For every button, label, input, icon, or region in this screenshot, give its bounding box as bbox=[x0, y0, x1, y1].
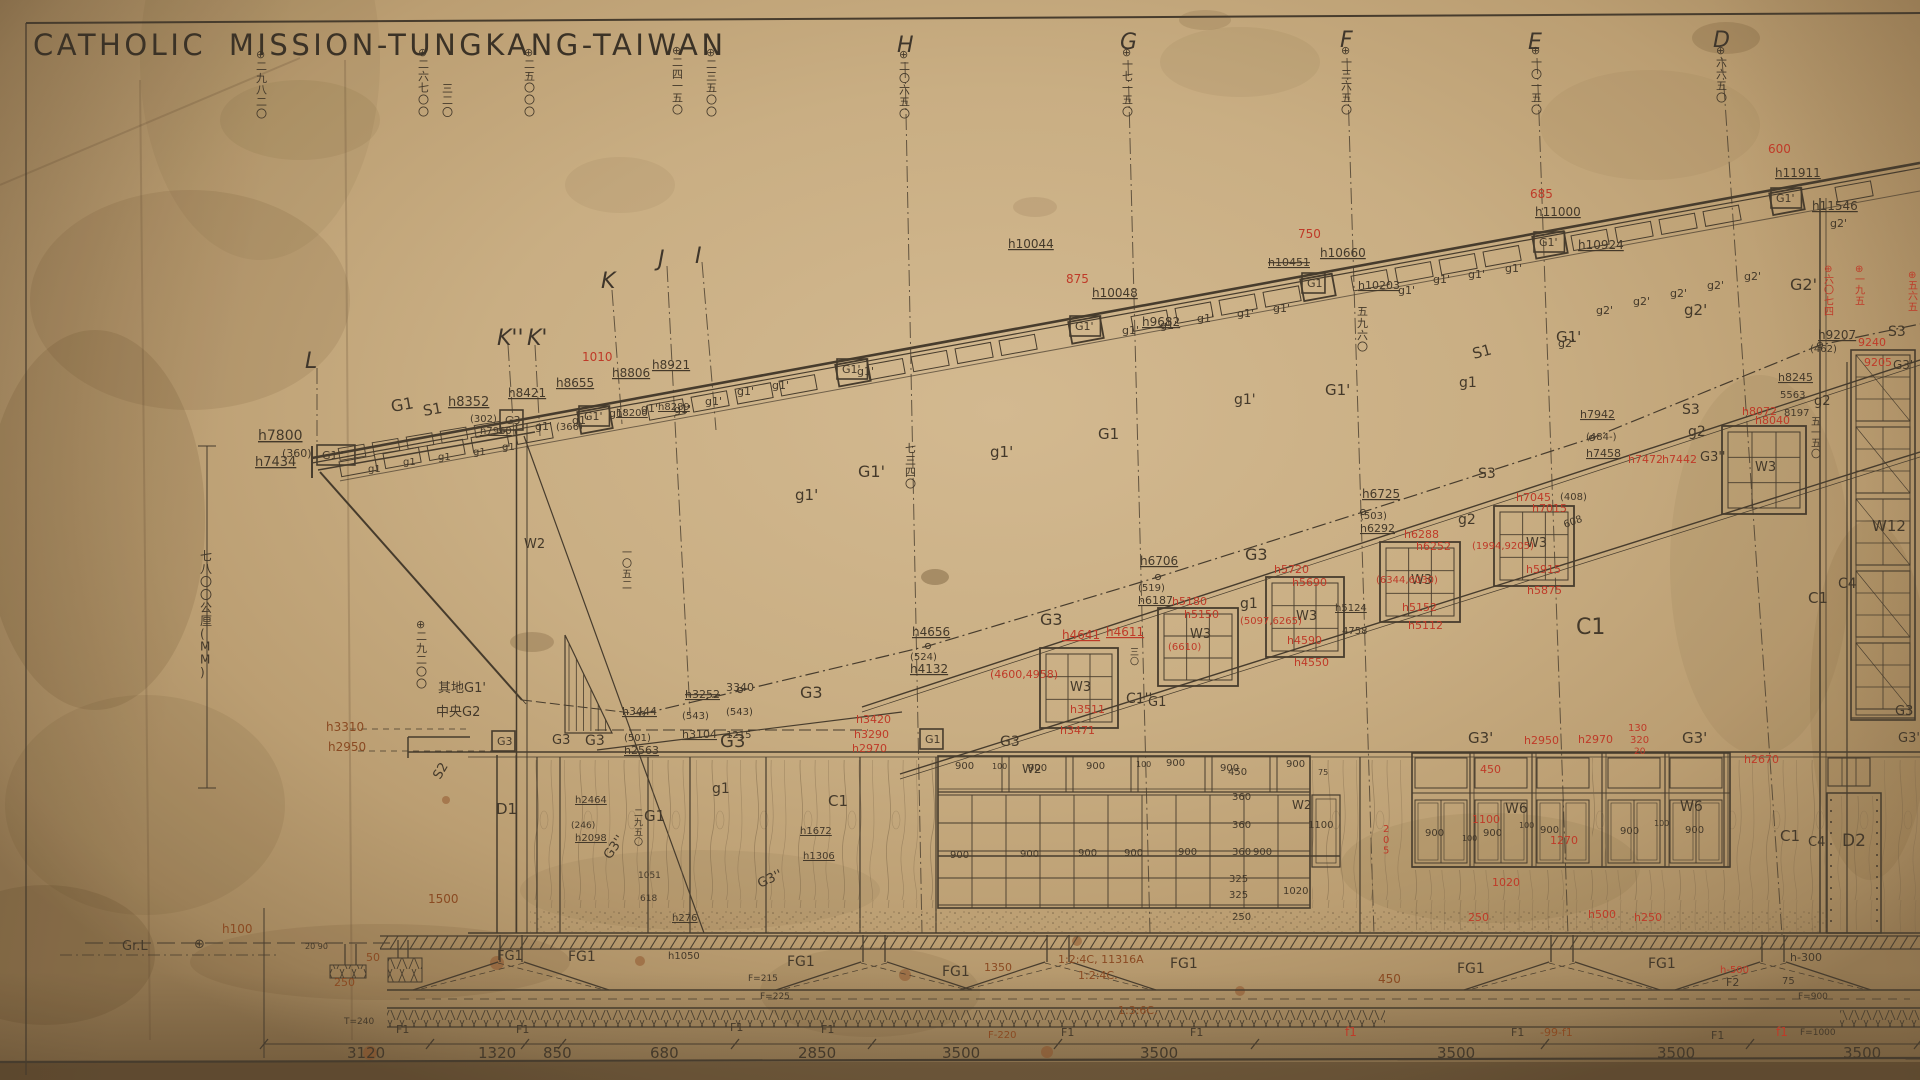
annotation-label: W6 bbox=[1680, 799, 1703, 815]
annotation-label: h8806 bbox=[612, 366, 650, 380]
annotation-label: FG1 bbox=[568, 949, 596, 965]
annotation-label: g1' bbox=[609, 407, 626, 420]
annotation-label: h4590 bbox=[1287, 634, 1322, 647]
annotation-label: g1 bbox=[712, 781, 730, 797]
annotation-label: 1:2:4C. bbox=[1078, 969, 1118, 982]
casement-inner bbox=[1637, 803, 1657, 860]
annotation-label: G1 bbox=[1098, 425, 1119, 443]
annotation-label: h5152 bbox=[1402, 601, 1437, 614]
annotation-label: 3500 bbox=[942, 1044, 980, 1062]
annotation-label: 900 bbox=[1253, 847, 1272, 858]
screenshot-root: ⊕二九八二〇⊕二六七〇〇三二〇⊕二五〇〇〇⊕二四一五〇⊕二三五〇〇⊕二〇六五〇⊕… bbox=[0, 0, 1920, 1080]
rivet bbox=[1830, 810, 1832, 812]
annotation-label: F1 bbox=[1061, 1026, 1074, 1039]
purlin bbox=[955, 342, 993, 363]
annotation-label: C1'' bbox=[1126, 691, 1152, 707]
rivet bbox=[1830, 799, 1832, 801]
annotation-label: FG1 bbox=[1648, 956, 1676, 972]
annotation-label: 100 bbox=[1136, 760, 1151, 769]
annotation-label: g1' bbox=[1273, 302, 1290, 315]
annotation-label: g2 bbox=[1688, 424, 1706, 440]
annotation-label: h5112 bbox=[1408, 619, 1443, 632]
annotation-label: W12 bbox=[1872, 517, 1906, 535]
ground-hatch bbox=[380, 936, 1920, 949]
annotation-label: W3 bbox=[1190, 627, 1211, 642]
annotation-label: 1100 bbox=[1308, 820, 1333, 831]
annotation-label: 100 bbox=[1654, 819, 1669, 828]
annotation-label: 75 bbox=[1782, 976, 1795, 987]
rivet bbox=[1830, 843, 1832, 845]
annotation-label: h10451 bbox=[1268, 256, 1310, 269]
annotation-label: W6 bbox=[1505, 801, 1528, 817]
annotation-label: 900 bbox=[1483, 828, 1502, 839]
annotation-label: 75 bbox=[1318, 768, 1328, 777]
annotation-label: FG1 bbox=[1457, 961, 1485, 977]
annotation-label: g1' bbox=[1234, 392, 1256, 408]
annotation-label: h4550 bbox=[1294, 656, 1329, 669]
annotation-label: h7442 bbox=[1662, 453, 1697, 466]
annotation-label: h3310 bbox=[326, 720, 364, 734]
annotation-label: f1 bbox=[1345, 1025, 1357, 1039]
annotation-label: h2950 bbox=[328, 740, 366, 754]
purlin-rect bbox=[1703, 205, 1741, 226]
annotation-label: h-300 bbox=[1790, 951, 1822, 964]
annotation-label: 20 90 bbox=[305, 942, 328, 951]
paper-crease bbox=[345, 60, 352, 1040]
rust-blot bbox=[1041, 1046, 1053, 1058]
annotation-label: L bbox=[305, 349, 317, 374]
annotation-label: h1050 bbox=[668, 951, 700, 962]
annotation-label: K'' bbox=[497, 326, 524, 351]
annotation-label: E bbox=[1528, 30, 1542, 55]
annotation-label: h5720 bbox=[1274, 563, 1309, 576]
annotation-label: 250 bbox=[334, 976, 355, 989]
annotation-label: 875 bbox=[1066, 272, 1089, 286]
rivet bbox=[1876, 810, 1878, 812]
annotation-label: 七三四〇 bbox=[905, 442, 916, 491]
annotation-label: h7015 bbox=[1532, 502, 1567, 515]
annotation-label: h11546 bbox=[1812, 199, 1858, 213]
annotation-label: 600 bbox=[1768, 142, 1791, 156]
annotation-label: ⊕一九五 bbox=[1855, 264, 1865, 307]
purlin-rect bbox=[955, 342, 993, 363]
annotation-label: h3511 bbox=[1070, 703, 1105, 716]
annotation-label: h5875 bbox=[1527, 584, 1562, 597]
stain bbox=[5, 695, 285, 915]
rivet bbox=[1876, 909, 1878, 911]
annotation-label: 360 bbox=[1232, 792, 1251, 803]
roof-top-chord-inner bbox=[312, 168, 1920, 463]
stain bbox=[1179, 10, 1231, 30]
annotation-label: C4 bbox=[1808, 835, 1825, 850]
transom-pane bbox=[1608, 758, 1660, 788]
annotation-label: K bbox=[601, 269, 617, 294]
rivet bbox=[1830, 887, 1832, 889]
annotation-label: (543) bbox=[682, 711, 709, 722]
annotation-label: C1 bbox=[828, 792, 848, 810]
annotation-label: F1 bbox=[396, 1023, 409, 1036]
annotation-label: 360 bbox=[1232, 820, 1251, 831]
annotation-label: G3 bbox=[1245, 545, 1268, 564]
annotation-label: 900 bbox=[1028, 763, 1047, 774]
annotation-label: G3 bbox=[1895, 704, 1913, 719]
annotation-label: g1' bbox=[1398, 284, 1415, 297]
annotation-label: G1 bbox=[644, 807, 665, 825]
annotation-label: h500 bbox=[1588, 908, 1616, 921]
annotation-label: 二九五〇 bbox=[634, 809, 643, 848]
annotation-label: 900 bbox=[1086, 761, 1105, 772]
annotation-label: F=1000 bbox=[1800, 1028, 1836, 1038]
annotation-label: g1' bbox=[641, 402, 658, 415]
rivet bbox=[1876, 865, 1878, 867]
annotation-label: g1' bbox=[674, 403, 691, 416]
door-wood bbox=[1830, 796, 1878, 930]
annotation-label: h7472 bbox=[1628, 453, 1663, 466]
annotation-label: h-500 bbox=[1720, 965, 1749, 976]
annotation-label: F1 bbox=[1711, 1029, 1724, 1042]
footing-hatch bbox=[387, 1010, 1385, 1027]
purlin bbox=[1395, 262, 1433, 283]
annotation-label: 3500 bbox=[1657, 1044, 1695, 1062]
annotation-label: 1010 bbox=[582, 350, 613, 364]
annotation-label: 900 bbox=[1124, 848, 1143, 859]
purlin-rect bbox=[1395, 262, 1433, 283]
annotation-label: F1 bbox=[1190, 1026, 1203, 1039]
annotation-label: 130 bbox=[1628, 723, 1647, 734]
annotation-label: W2 bbox=[524, 537, 545, 552]
annotation-label: g1 bbox=[403, 457, 416, 468]
annotation-label: h10048 bbox=[1092, 286, 1138, 300]
annotation-label: h4132 bbox=[910, 662, 948, 676]
annotation-label: D1 bbox=[496, 800, 517, 818]
annotation-label: g1' bbox=[990, 443, 1013, 461]
annotation-label: h5915 bbox=[1526, 563, 1561, 576]
annotation-label: h3420 bbox=[856, 713, 891, 726]
annotation-label: f1 bbox=[1776, 1025, 1788, 1039]
purlin-rect bbox=[911, 350, 949, 371]
annotation-label: 1051 bbox=[638, 871, 661, 881]
annotation-label: 900 bbox=[1178, 847, 1197, 858]
annotation-label: g2' bbox=[1830, 217, 1847, 230]
annotation-label: G1' bbox=[1556, 328, 1581, 346]
annotation-label: (4600,4958) bbox=[990, 668, 1058, 681]
annotation-label: 100 bbox=[992, 762, 1007, 771]
annotation-label: F1 bbox=[516, 1023, 529, 1036]
annotation-label: g1 bbox=[1459, 375, 1477, 391]
annotation-label: h8352 bbox=[448, 395, 489, 410]
annotation-label: h4611 bbox=[1106, 625, 1144, 639]
annotation-label: (5097,6265) bbox=[1240, 616, 1302, 627]
annotation-label: 50 bbox=[366, 951, 380, 964]
rivet bbox=[1876, 832, 1878, 834]
annotation-label: W3 bbox=[1070, 680, 1091, 695]
annotation-label: h276 bbox=[672, 913, 697, 924]
rivet bbox=[1876, 898, 1878, 900]
annotation-label: ⊕六〇七四 bbox=[1824, 264, 1834, 318]
annotation-label: 320 bbox=[1630, 735, 1649, 746]
annotation-label: 3120 bbox=[347, 1044, 385, 1062]
annotation-label: g2 bbox=[1814, 394, 1831, 409]
annotation-label: g2 bbox=[1458, 512, 1476, 528]
annotation-label: g1' bbox=[795, 486, 818, 504]
annotation-label: G1 bbox=[389, 393, 415, 416]
annotation-label: 2850 bbox=[798, 1044, 836, 1062]
annotation-label: S1 bbox=[422, 399, 444, 420]
annotation-label: G2' bbox=[1790, 275, 1817, 294]
rivet bbox=[1876, 843, 1878, 845]
rivet bbox=[1876, 887, 1878, 889]
annotation-label: 680 bbox=[650, 1044, 679, 1062]
annotation-label: h100 bbox=[222, 922, 253, 936]
annotation-label: G3 bbox=[497, 735, 513, 748]
rivet bbox=[1876, 920, 1878, 922]
annotation-label: (501) bbox=[624, 733, 651, 744]
rivet bbox=[1830, 920, 1832, 922]
rivet bbox=[1876, 854, 1878, 856]
annotation-label: g1' bbox=[772, 379, 789, 392]
annotation-label: T=240 bbox=[343, 1017, 374, 1027]
annotation-label: 618 bbox=[640, 894, 657, 904]
transom-pane bbox=[1537, 758, 1589, 788]
annotation-label: 1500 bbox=[428, 892, 459, 906]
annotation-label: 900 bbox=[950, 850, 969, 861]
annotation-label: 20 bbox=[1634, 747, 1646, 757]
annotation-label: g1' bbox=[1237, 307, 1254, 320]
annotation-label: g1' bbox=[1505, 262, 1522, 275]
annotation-label: h9207 bbox=[1818, 328, 1856, 342]
annotation-label: h11911 bbox=[1775, 166, 1821, 180]
annotation-label: C4 bbox=[1838, 576, 1857, 592]
annotation-label: ⊕ bbox=[194, 937, 205, 952]
purlin bbox=[1703, 205, 1741, 226]
annotation-label: 1020 bbox=[1283, 886, 1308, 897]
purlin bbox=[999, 334, 1037, 355]
stain bbox=[921, 569, 949, 585]
annotation-label: (302) bbox=[470, 414, 497, 425]
rivet bbox=[1830, 865, 1832, 867]
annotation-label: G3 bbox=[505, 414, 521, 427]
annotation-label: h2563 bbox=[624, 744, 659, 757]
annotation-label: (6344,6030) bbox=[1376, 575, 1438, 586]
annotation-label: 五一五〇 bbox=[1811, 417, 1821, 460]
annotation-label: W3 bbox=[1755, 460, 1776, 475]
annotation-label: h6252 bbox=[1416, 540, 1451, 553]
annotation-label: G1 bbox=[1307, 277, 1323, 290]
annotation-label: g1 bbox=[502, 442, 515, 453]
rust-blot bbox=[899, 969, 911, 981]
annotation-label: F=215 bbox=[748, 974, 778, 984]
wood-panel bbox=[1312, 760, 1410, 908]
stain bbox=[1013, 197, 1057, 217]
architectural-section-drawing: ⊕二九八二〇⊕二六七〇〇三二〇⊕二五〇〇〇⊕二四一五〇⊕二三五〇〇⊕二〇六五〇⊕… bbox=[0, 0, 1920, 1080]
purlin bbox=[911, 350, 949, 371]
annotation-label: S3 bbox=[1478, 466, 1496, 482]
shelf-unit bbox=[938, 756, 1310, 908]
annotation-label: S3 bbox=[1888, 324, 1906, 340]
annotation-label: F2 bbox=[1726, 976, 1739, 989]
rivet bbox=[1830, 898, 1832, 900]
pier-diagonal bbox=[1472, 963, 1575, 989]
annotation-label: h8421 bbox=[508, 386, 546, 400]
annotation-label: 1:2:4C, 11316A bbox=[1058, 953, 1144, 966]
annotation-label: 3500 bbox=[1140, 1044, 1178, 1062]
annotation-label: g1 bbox=[1240, 596, 1258, 612]
annotation-label: 325 bbox=[1229, 890, 1248, 901]
annotation-label: G1' bbox=[1776, 192, 1795, 205]
annotation-label: G3 bbox=[800, 683, 823, 702]
annotation-label: h3290 bbox=[854, 728, 889, 741]
annotation-label: 450 bbox=[1228, 767, 1247, 778]
annotation-label: g2' bbox=[1707, 279, 1724, 292]
annotation-label: h2464 bbox=[575, 795, 607, 806]
annotation-label: h2970 bbox=[1578, 733, 1613, 746]
rust-blot bbox=[1235, 986, 1245, 996]
annotation-label: h5124 bbox=[1335, 603, 1367, 614]
annotation-label: 900 bbox=[1620, 826, 1639, 837]
annotation-label: D2 bbox=[1842, 831, 1866, 851]
window-pier bbox=[1592, 758, 1606, 864]
paper-edge-shadow bbox=[0, 1062, 1920, 1080]
annotation-label: g1' bbox=[572, 414, 589, 427]
annotation-label: h8921 bbox=[652, 358, 690, 372]
annotation-label: h3252 bbox=[685, 688, 720, 701]
rivet bbox=[1876, 821, 1878, 823]
annotation-label: h7458 bbox=[1586, 447, 1621, 460]
stain bbox=[1160, 27, 1320, 97]
annotation-label: 900 bbox=[955, 761, 974, 772]
annotation-label: 1020 bbox=[1492, 876, 1520, 889]
annotation-label: h4656 bbox=[912, 625, 950, 639]
annotation-label: h6292 bbox=[1360, 522, 1395, 535]
annotation-label: ⊕一三六五〇 bbox=[1341, 44, 1352, 116]
pier-spread bbox=[1786, 962, 1871, 990]
annotation-label: h6706 bbox=[1140, 554, 1178, 568]
annotation-label: g2' bbox=[1670, 287, 1687, 300]
annotation-label: G3 bbox=[1000, 734, 1020, 750]
annotation-label: 五九六〇 bbox=[1357, 305, 1368, 354]
rivet bbox=[1876, 799, 1878, 801]
purlin-rect bbox=[999, 334, 1037, 355]
annotation-label: 750 bbox=[1298, 227, 1321, 241]
annotation-label: 900 bbox=[1166, 758, 1185, 769]
annotation-label: -99-f1 bbox=[1540, 1026, 1573, 1039]
annotation-label: G1' bbox=[1539, 236, 1558, 249]
annotation-label: F=225 bbox=[760, 992, 790, 1002]
annotation-label: ⊕五六五 bbox=[1908, 270, 1918, 313]
purlin bbox=[1659, 213, 1697, 234]
annotation-label: h6725 bbox=[1362, 487, 1400, 501]
annotation-label: h8040 bbox=[1755, 414, 1790, 427]
footing-hatch bbox=[1840, 1010, 1920, 1027]
annotation-label: 中央G2 bbox=[436, 705, 480, 720]
annotation-label: g1' bbox=[535, 420, 552, 433]
annotation-label: 一〇五二 bbox=[622, 548, 632, 591]
annotation-label: (519) bbox=[1138, 583, 1165, 594]
grid-line-J bbox=[667, 266, 690, 714]
annotation-label: (6610) bbox=[1168, 642, 1201, 653]
annotation-label: 三二〇 bbox=[442, 82, 453, 119]
annotation-label: 其地G1' bbox=[438, 681, 486, 696]
annotation-label: J bbox=[654, 247, 665, 272]
annotation-label: 900 bbox=[1425, 828, 1444, 839]
annotation-label: h8655 bbox=[556, 376, 594, 390]
annotation-label: g1' bbox=[737, 385, 754, 398]
annotation-label: h5150 bbox=[1184, 608, 1219, 621]
annotation-label: 1:3:6C. bbox=[1118, 1004, 1158, 1017]
annotation-label: 100 bbox=[1519, 821, 1534, 830]
annotation-label: g1' bbox=[705, 395, 722, 408]
annotation-label: G1' bbox=[1325, 381, 1350, 399]
annotation-label: Gr.L bbox=[122, 939, 148, 954]
rivet bbox=[1830, 876, 1832, 878]
annotation-label: h3444 bbox=[622, 705, 657, 718]
annotation-label: 450 bbox=[1480, 763, 1501, 776]
annotation-label: h10203 bbox=[1358, 279, 1400, 292]
annotation-label: (543) bbox=[726, 707, 753, 718]
annotation-label: 325 bbox=[1229, 874, 1248, 885]
annotation-label: h2950 bbox=[1524, 734, 1559, 747]
annotation-label: h10924 bbox=[1578, 238, 1624, 252]
pier-diagonal bbox=[1549, 963, 1652, 989]
annotation-label: h3471 bbox=[1060, 724, 1095, 737]
annotation-label: h10044 bbox=[1008, 237, 1054, 251]
annotation-label: 850 bbox=[543, 1044, 572, 1062]
pier-diagonal bbox=[1760, 963, 1863, 989]
annotation-label: 4758 bbox=[1342, 626, 1367, 637]
annotation-label: 900 bbox=[1020, 849, 1039, 860]
annotation-label: S3 bbox=[1682, 402, 1700, 418]
annotation-label: h7960 bbox=[480, 426, 512, 437]
annotation-label: g1' bbox=[1468, 268, 1485, 281]
annotation-label: h250 bbox=[1634, 911, 1662, 924]
annotation-label: g2' bbox=[1633, 295, 1650, 308]
annotation-label: 三〇 bbox=[1130, 648, 1139, 668]
drawing-title: CATHOLIC MISSION-TUNGKANG-TAIWAN bbox=[33, 28, 727, 62]
annotation-label: ⊕二九二〇〇 bbox=[416, 618, 427, 690]
annotation-label: G3' bbox=[1898, 731, 1920, 746]
annotation-label: S1 bbox=[1470, 341, 1493, 363]
annotation-label: h1672 bbox=[800, 826, 832, 837]
annotation-label: F=900 bbox=[1798, 992, 1828, 1002]
annotation-label: h7942 bbox=[1580, 408, 1615, 421]
annotation-label: 205 bbox=[1383, 824, 1389, 857]
rust-blot bbox=[635, 956, 645, 966]
annotation-label: g2' bbox=[1596, 304, 1613, 317]
annotation-label: 900 bbox=[1685, 825, 1704, 836]
annotation-label: g1' bbox=[1160, 319, 1177, 332]
annotation-label: G3' bbox=[1682, 729, 1707, 747]
rivet bbox=[1830, 832, 1832, 834]
annotation-label: g1 bbox=[368, 464, 381, 475]
annotation-label: h3104 bbox=[682, 728, 717, 741]
annotation-label: C1 bbox=[1808, 589, 1828, 607]
wood-panel bbox=[1882, 760, 1920, 932]
annotation-label: 250 bbox=[1232, 912, 1251, 923]
annotation-label: (503) bbox=[1360, 511, 1387, 522]
annotation-label: g1' bbox=[857, 365, 874, 378]
rivet bbox=[1830, 909, 1832, 911]
annotation-label: (484-) bbox=[1586, 432, 1617, 443]
annotation-label: g1 bbox=[438, 452, 451, 463]
annotation-label: F1 bbox=[730, 1021, 743, 1034]
annotation-label: C1 bbox=[1780, 827, 1800, 845]
gable-louver bbox=[565, 635, 612, 733]
annotation-label: g1' bbox=[1433, 273, 1450, 286]
annotation-label: G3 bbox=[1040, 610, 1063, 629]
annotation-label: 1350 bbox=[984, 961, 1012, 974]
annotation-label: g2' bbox=[1684, 301, 1707, 319]
annotation-label: 900 bbox=[1286, 759, 1305, 770]
